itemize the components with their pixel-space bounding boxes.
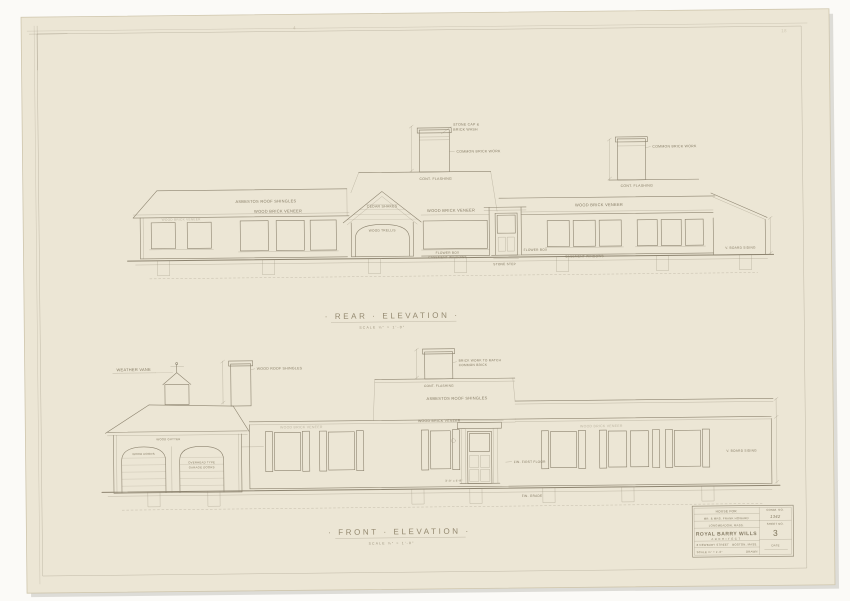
annotation: WOOD BRICK VENEER [162,217,202,221]
front-elevation-title: · FRONT · ELEVATION · [328,527,471,537]
annotation: 3'-0" x 6'-8" [445,479,462,483]
annotation: CEDAR SHAKES [367,204,398,208]
annotation: WOOD DOORS [132,452,155,456]
annotation: WOOD BRICK VENEER [427,207,475,213]
annotation: CONT. FLASHING [621,184,654,188]
annotation: ASBESTOS ROOF SHINGLES [427,395,488,401]
title-block-address-city: BOSTON, MASS. [732,542,757,546]
blueprint-sheet-svg: 4 18 [0,0,850,601]
annotation: STONE CAP & [453,122,480,126]
annotation: BRICK WASH [453,127,478,131]
annotation: COMMON BRICK [459,363,488,367]
annotation: WEATHER VANE [116,367,151,372]
paper-sheet [21,9,835,593]
rear-elevation-title: · REAR · ELEVATION · [325,311,460,321]
annotation: STONE STEP [493,262,516,266]
annotation: CASEMENT WINDOWS [565,254,604,258]
pencil-mark: 18 [781,28,787,33]
annotation: CONT. FLASHING [424,384,454,388]
annotation: WOOD GUTTER [156,437,180,441]
title-block-date-label: DATE [771,543,779,547]
title-block-project-for: HOUSE FOR [716,509,738,513]
pencil-mark: 4 [293,25,296,30]
annotation: ASBESTOS ROOF SHINGLES [235,198,296,204]
photo-of-architectural-drawing: 4 18 [0,0,850,601]
title-block-address: 8 NEWBURY STREET [697,543,729,547]
annotation: WOOD BRICK VENEER [575,202,623,208]
annotation: V. BOARD SIDING [726,449,757,453]
annotation: WOOD TRELLIS [369,228,396,232]
annotation: V. BOARD SIDING [725,246,756,250]
annotation: COMMON BRICK WORK [652,144,697,148]
title-block-architect-title: ARCHITECT [711,537,741,541]
annotation: WOOD ROOF SHINGLES [257,366,303,370]
annotation: WOOD BRICK VENEER [280,425,323,429]
title-block-comm-label: COMM. NO. [766,508,784,512]
title-block-sheet-no: 3 [773,528,778,538]
annotation: CASEMENT WINDOWS [428,255,467,259]
annotation: FIN. GRADE [522,494,543,498]
annotation: WOOD BRICK VENEER [254,208,302,214]
title-block-client: MR. & MRS. FRANK HOWARD [704,516,749,520]
annotation: FLOWER BOX [524,248,548,252]
rear-elevation-scale: SCALE ¼" = 1'-0" [359,325,405,329]
title-block-drawn: DRAWN [746,550,758,554]
annotation: GARAGE DOORS [189,465,215,469]
title-block-scale: SCALE ¼" = 1'-0" [697,550,723,554]
title-block-location: LONGMEADOW, MASS. [709,523,744,527]
annotation: CONT. FLASHING [419,177,452,181]
title-block-comm-no: 1342 [770,514,781,519]
sheet-group: 4 18 [7,9,839,598]
title-block-sheet-label: SHEET NO. [767,522,784,526]
annotation: FIN. FIRST FLOOR [514,460,546,464]
annotation: WOOD BRICK VENEER [418,419,461,423]
annotation: WOOD BRICK VENEER [580,424,623,428]
annotation: OVERHEAD TYPE [188,460,215,464]
annotation: COMMON BRICK WORK [456,149,501,153]
front-elevation-scale: SCALE ¼" = 1'-0" [369,541,415,545]
